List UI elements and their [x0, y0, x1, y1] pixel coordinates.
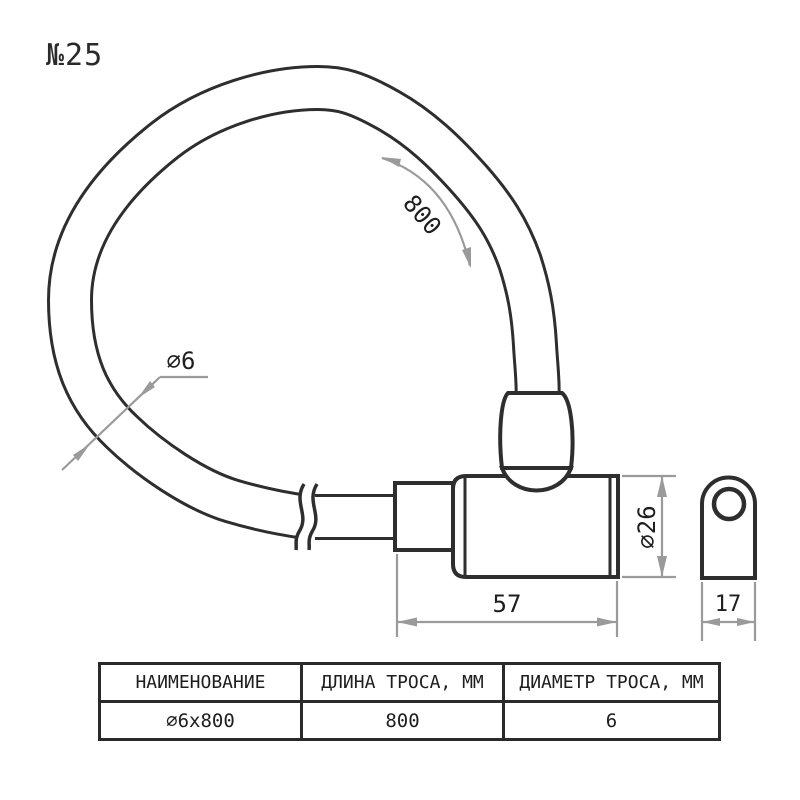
cable-collar [395, 483, 453, 550]
spec-value-name: ∅6x800 [100, 702, 302, 740]
dim-end-width-text: 17 [715, 592, 742, 617]
dim-arrow [381, 157, 401, 167]
dim-arrow [737, 618, 755, 626]
dim-body-length-text: 57 [493, 590, 522, 618]
spec-header-diameter: ДИАМЕТР ТРОСА, ММ [504, 664, 720, 702]
cable-loop-fill [70, 88, 538, 517]
cable-ferrule [500, 393, 572, 468]
spec-table: НАИМЕНОВАНИЕ ДЛИНА ТРОСА, ММ ДИАМЕТР ТРО… [98, 662, 721, 741]
cable-loop [70, 88, 538, 517]
dim-arrow [462, 247, 471, 268]
spec-table-header-row: НАИМЕНОВАНИЕ ДЛИНА ТРОСА, ММ ДИАМЕТР ТРО… [100, 664, 720, 702]
dim-arrow [397, 618, 417, 627]
dim-arrow [657, 476, 667, 497]
dim-body-diameter-text: ∅26 [633, 505, 661, 548]
spec-value-diameter: 6 [504, 702, 720, 740]
spec-header-length: ДЛИНА ТРОСА, ММ [302, 664, 504, 702]
dim-arrow [597, 618, 617, 627]
dim-cable-diameter-text: ∅6 [167, 347, 196, 375]
spec-table-value-row: ∅6x800 800 6 [100, 702, 720, 740]
spec-value-length: 800 [302, 702, 504, 740]
dim-arrow [657, 556, 667, 577]
spec-header-name: НАИМЕНОВАНИЕ [100, 664, 302, 702]
dim-arrow [702, 618, 720, 626]
end-view-hole [714, 489, 744, 519]
